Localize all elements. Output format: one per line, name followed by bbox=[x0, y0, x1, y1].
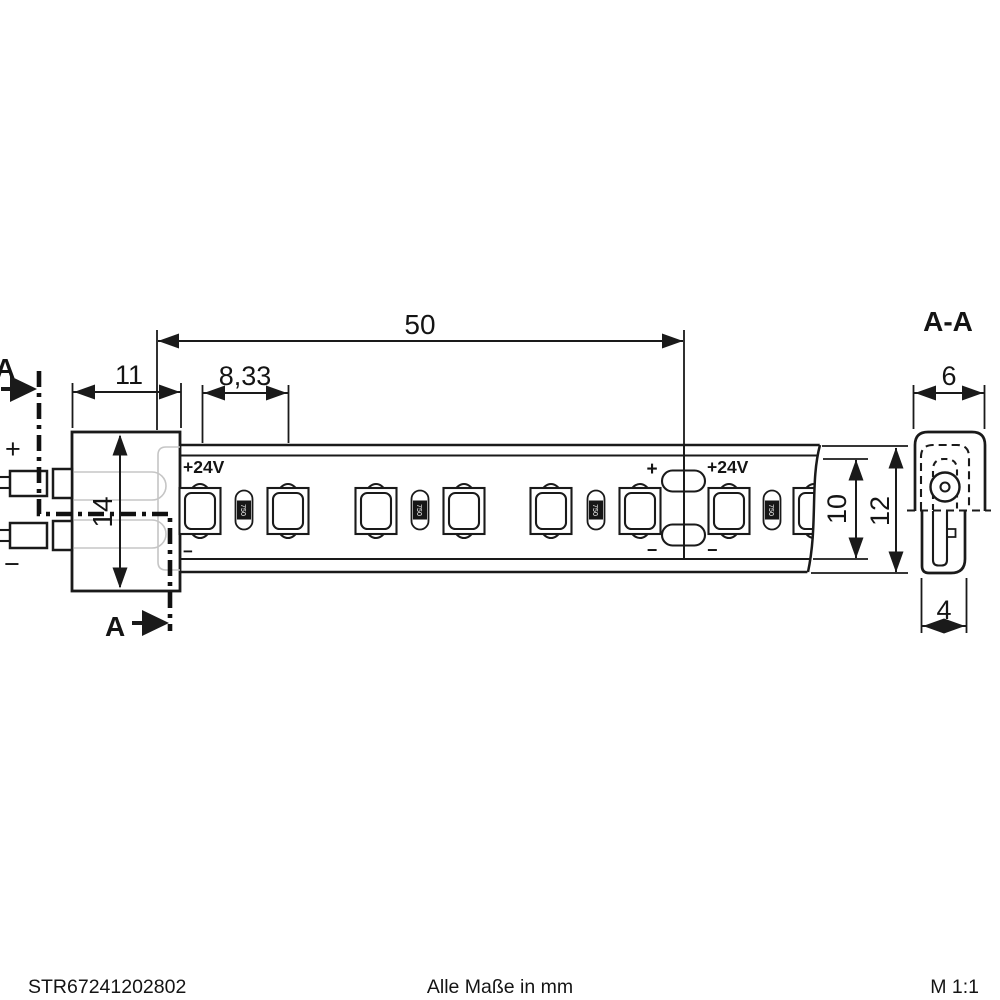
dim-12-text: 12 bbox=[865, 496, 895, 526]
wire-negative bbox=[0, 521, 72, 550]
section-arrow-bottom: A bbox=[105, 610, 169, 642]
article-number: STR67241202802 bbox=[28, 976, 186, 998]
joint-plus-label: + bbox=[646, 459, 657, 480]
segment-joint bbox=[662, 446, 705, 558]
section-label-bottom: A bbox=[105, 611, 125, 642]
dim-50-text: 50 bbox=[404, 309, 435, 340]
voltage-label-left: +24V bbox=[183, 457, 225, 477]
wire-positive bbox=[0, 469, 72, 498]
dim-4-text: 4 bbox=[936, 595, 951, 625]
footer: STR67241202802 Alle Maße in mm M 1:1 bbox=[28, 976, 979, 998]
scale-note: M 1:1 bbox=[930, 976, 979, 998]
dim-led-pitch: 8,33 bbox=[203, 361, 289, 443]
led-strip: +24V − + − +24V − bbox=[180, 443, 849, 575]
section-view-aa: A-A 6 4 bbox=[907, 306, 991, 634]
dim-connector-width: 11 bbox=[73, 360, 182, 428]
wire-positive-label: + bbox=[5, 434, 21, 464]
technical-drawing-led-strip: 750 + − bbox=[0, 0, 1000, 1000]
dim-11-text: 11 bbox=[115, 360, 143, 390]
dim-8-33-text: 8,33 bbox=[219, 361, 272, 391]
joint-minus-right-label: − bbox=[707, 540, 718, 560]
joint-minus-left-label: − bbox=[647, 540, 658, 560]
dim-6-text: 6 bbox=[941, 361, 956, 391]
dim-profile-width: 6 bbox=[914, 361, 985, 429]
profile-slot bbox=[933, 511, 947, 566]
voltage-label-right: +24V bbox=[707, 457, 749, 477]
section-view-title: A-A bbox=[923, 306, 973, 337]
dim-10-text: 10 bbox=[822, 494, 852, 524]
minus-label-left: − bbox=[183, 542, 193, 561]
profile-led-dot bbox=[941, 483, 950, 492]
wire-negative-label: − bbox=[4, 549, 20, 579]
dim-profile-bottom-width: 4 bbox=[922, 578, 967, 634]
units-note: Alle Maße in mm bbox=[427, 976, 573, 998]
dim-14-text: 14 bbox=[87, 496, 118, 527]
profile-notch bbox=[947, 529, 956, 537]
section-label-top: A bbox=[0, 353, 15, 384]
section-arrow-top: A bbox=[0, 353, 37, 402]
